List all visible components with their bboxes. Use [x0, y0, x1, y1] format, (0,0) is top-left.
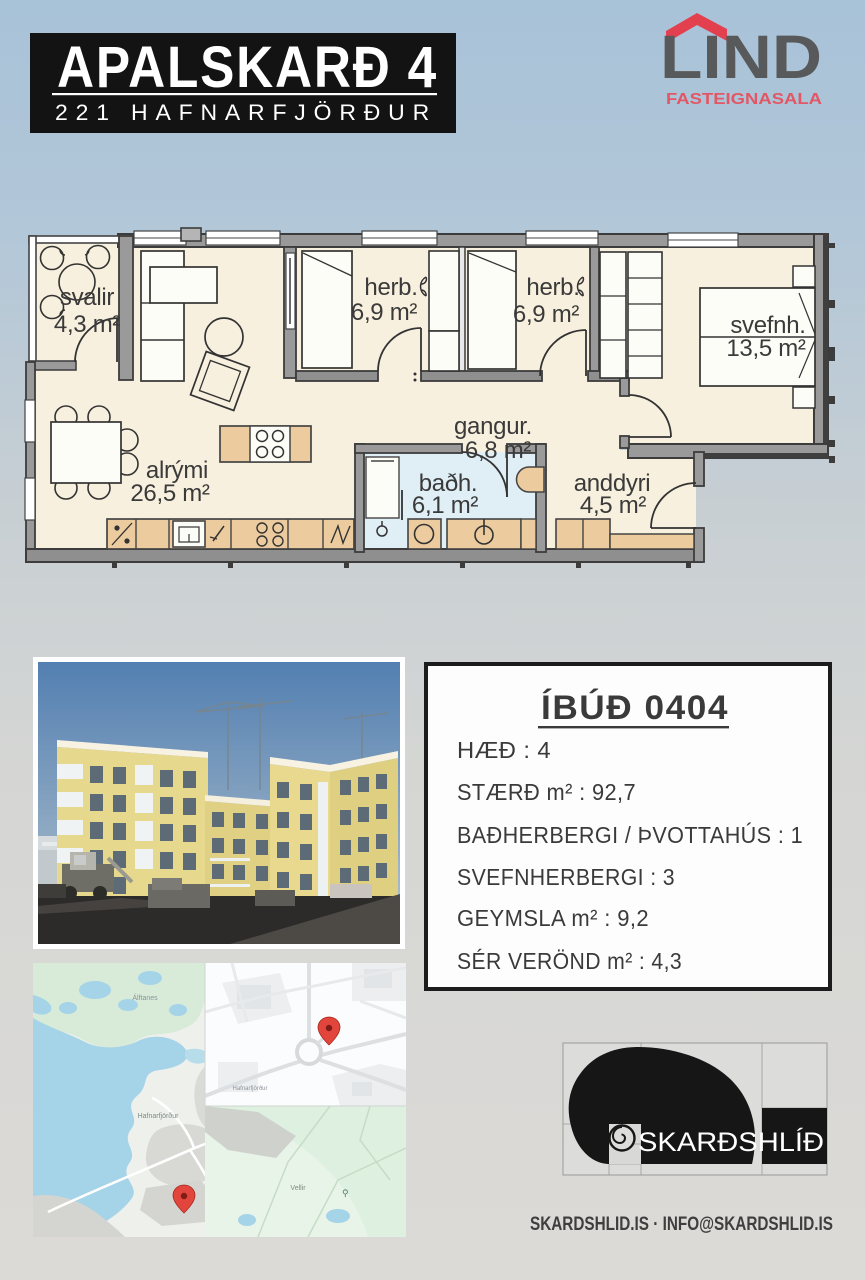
svg-text:6,8 m²: 6,8 m²	[465, 437, 532, 464]
svg-text:APALSKARÐ 4: APALSKARÐ 4	[57, 35, 438, 100]
svg-text:SÉR VERÖND m² : 4,3: SÉR VERÖND m² : 4,3	[457, 948, 682, 974]
svg-text:SKARDSHLID.IS · INFO@SKARDSHLI: SKARDSHLID.IS · INFO@SKARDSHLID.IS	[530, 1214, 833, 1235]
svg-text:herb.: herb.	[364, 274, 417, 301]
svg-text:⚲: ⚲	[342, 1188, 349, 1198]
svg-text:FASTEIGNASALA: FASTEIGNASALA	[666, 91, 823, 108]
svg-text:HÆÐ : 4: HÆÐ : 4	[457, 737, 551, 763]
svg-text:Vellir: Vellir	[290, 1185, 306, 1192]
svg-text:Hafnarfjörður: Hafnarfjörður	[138, 1112, 180, 1120]
svg-text:6,1 m²: 6,1 m²	[412, 492, 479, 519]
svg-text:221 HAFNARFJÖRÐUR: 221 HAFNARFJÖRÐUR	[55, 100, 437, 125]
svg-text:svalir: svalir	[60, 284, 115, 311]
svg-text:13,5 m²: 13,5 m²	[726, 335, 806, 362]
svg-text:STÆRÐ m² : 92,7: STÆRÐ m² : 92,7	[457, 779, 636, 805]
svg-text:6,9 m²: 6,9 m²	[351, 299, 418, 326]
svg-text:SKARÐSHLÍÐ: SKARÐSHLÍÐ	[638, 1127, 824, 1157]
svg-text:Álftanes: Álftanes	[132, 993, 158, 1002]
svg-text:26,5 m²: 26,5 m²	[130, 480, 210, 507]
svg-text:GEYMSLA m² : 9,2: GEYMSLA m² : 9,2	[457, 905, 649, 931]
svg-text:BAÐHERBERGI / ÞVOTTAHÚS : 1: BAÐHERBERGI / ÞVOTTAHÚS : 1	[457, 822, 803, 848]
svg-text:4,5 m²: 4,5 m²	[580, 492, 647, 519]
svg-text:LIND: LIND	[660, 23, 822, 91]
svg-text:Hafnarfjörður: Hafnarfjörður	[232, 1085, 267, 1092]
svg-text:SVEFNHERBERGI : 3: SVEFNHERBERGI : 3	[457, 864, 675, 890]
svg-text:4,3 m²: 4,3 m²	[54, 311, 121, 338]
svg-text:6,9 m²: 6,9 m²	[513, 301, 580, 328]
svg-text:gangur.: gangur.	[454, 413, 532, 440]
svg-text:ÍBÚÐ 0404: ÍBÚÐ 0404	[541, 689, 729, 727]
svg-text:herb.: herb.	[526, 274, 579, 301]
